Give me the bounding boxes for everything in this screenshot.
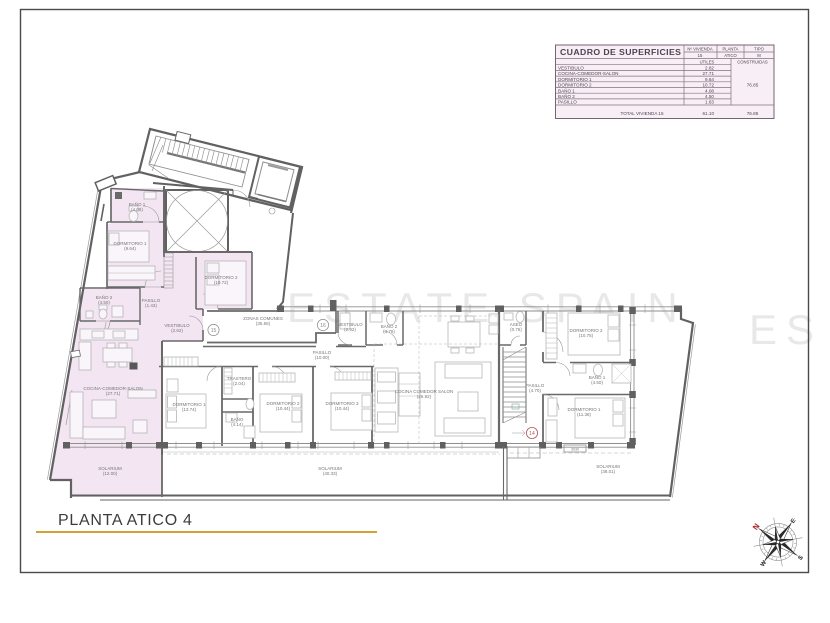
svg-text:9.64: 9.64 <box>705 77 714 82</box>
svg-text:(9.64): (9.64) <box>124 246 136 251</box>
svg-text:(11.38): (11.38) <box>577 412 591 417</box>
svg-text:(1.43): (1.43) <box>145 303 157 308</box>
svg-text:BAÑO 2: BAÑO 2 <box>558 93 575 99</box>
svg-text:(10.75): (10.75) <box>579 333 594 338</box>
svg-text:(0.76): (0.76) <box>510 327 522 332</box>
svg-text:Nº VIVIENDA: Nº VIVIENDA <box>687 46 712 51</box>
svg-text:(4.50): (4.50) <box>591 380 603 385</box>
svg-text:CUADRO DE SUPERFICIES: CUADRO DE SUPERFICIES <box>560 47 681 57</box>
svg-text:(10.72): (10.72) <box>214 280 229 285</box>
svg-text:ES: ES <box>749 306 823 353</box>
svg-text:VESTIBULO: VESTIBULO <box>558 66 584 71</box>
svg-text:(10.44): (10.44) <box>335 406 350 411</box>
svg-text:DORMITORIO 2: DORMITORIO 2 <box>558 83 592 88</box>
svg-text:76.85: 76.85 <box>747 83 759 88</box>
svg-text:(3.76): (3.76) <box>383 329 395 334</box>
svg-text:CONSTRUIDAS: CONSTRUIDAS <box>737 60 768 65</box>
svg-text:(4.50): (4.50) <box>98 300 110 305</box>
svg-text:1.63: 1.63 <box>705 100 714 105</box>
svg-text:(2.92): (2.92) <box>344 327 356 332</box>
svg-text:(38.01): (38.01) <box>601 469 616 474</box>
svg-text:PLANTA: PLANTA <box>723 46 739 51</box>
svg-text:COCINA-COMEDOR-SALON: COCINA-COMEDOR-SALON <box>558 71 619 76</box>
svg-text:(10.44): (10.44) <box>276 406 291 411</box>
svg-text:(2.62): (2.62) <box>171 328 183 333</box>
svg-text:(13.74): (13.74) <box>182 407 197 412</box>
svg-text:ATICO: ATICO <box>724 53 737 58</box>
svg-text:(2.04): (2.04) <box>233 381 245 386</box>
svg-text:(4.08): (4.08) <box>131 207 143 212</box>
svg-text:UTILES: UTILES <box>700 60 715 65</box>
svg-text:61.10: 61.10 <box>703 111 715 116</box>
svg-text:M: M <box>757 53 761 58</box>
svg-text:(10.00): (10.00) <box>315 355 330 360</box>
svg-text:14: 14 <box>529 431 535 437</box>
svg-text:PLANTA ATICO 4: PLANTA ATICO 4 <box>58 512 193 529</box>
svg-text:(35.56): (35.56) <box>256 321 271 326</box>
svg-text:15: 15 <box>698 53 703 58</box>
svg-text:(4.70): (4.70) <box>529 388 541 393</box>
svg-text:DORMITORIO 1: DORMITORIO 1 <box>558 77 592 82</box>
svg-text:(4.14): (4.14) <box>231 422 243 427</box>
svg-text:(40.33): (40.33) <box>323 471 338 476</box>
svg-text:(12.00): (12.00) <box>103 471 118 476</box>
svg-text:2.82: 2.82 <box>705 66 714 71</box>
svg-text:76.85: 76.85 <box>747 111 759 116</box>
svg-text:4.08: 4.08 <box>705 88 714 93</box>
svg-text:(27.71): (27.71) <box>106 391 121 396</box>
svg-text:16: 16 <box>320 323 326 329</box>
svg-text:TOTAL VIVIENDA 15: TOTAL VIVIENDA 15 <box>620 111 664 116</box>
svg-text:TIPO: TIPO <box>754 46 765 51</box>
svg-text:PASILLO: PASILLO <box>558 100 577 105</box>
svg-text:BAÑO 1: BAÑO 1 <box>558 87 575 93</box>
svg-text:10.72: 10.72 <box>703 83 715 88</box>
svg-text:3030: 3030 <box>571 448 579 452</box>
svg-text:27.71: 27.71 <box>703 71 715 76</box>
svg-text:15: 15 <box>211 328 217 334</box>
svg-text:4.50: 4.50 <box>705 94 714 99</box>
